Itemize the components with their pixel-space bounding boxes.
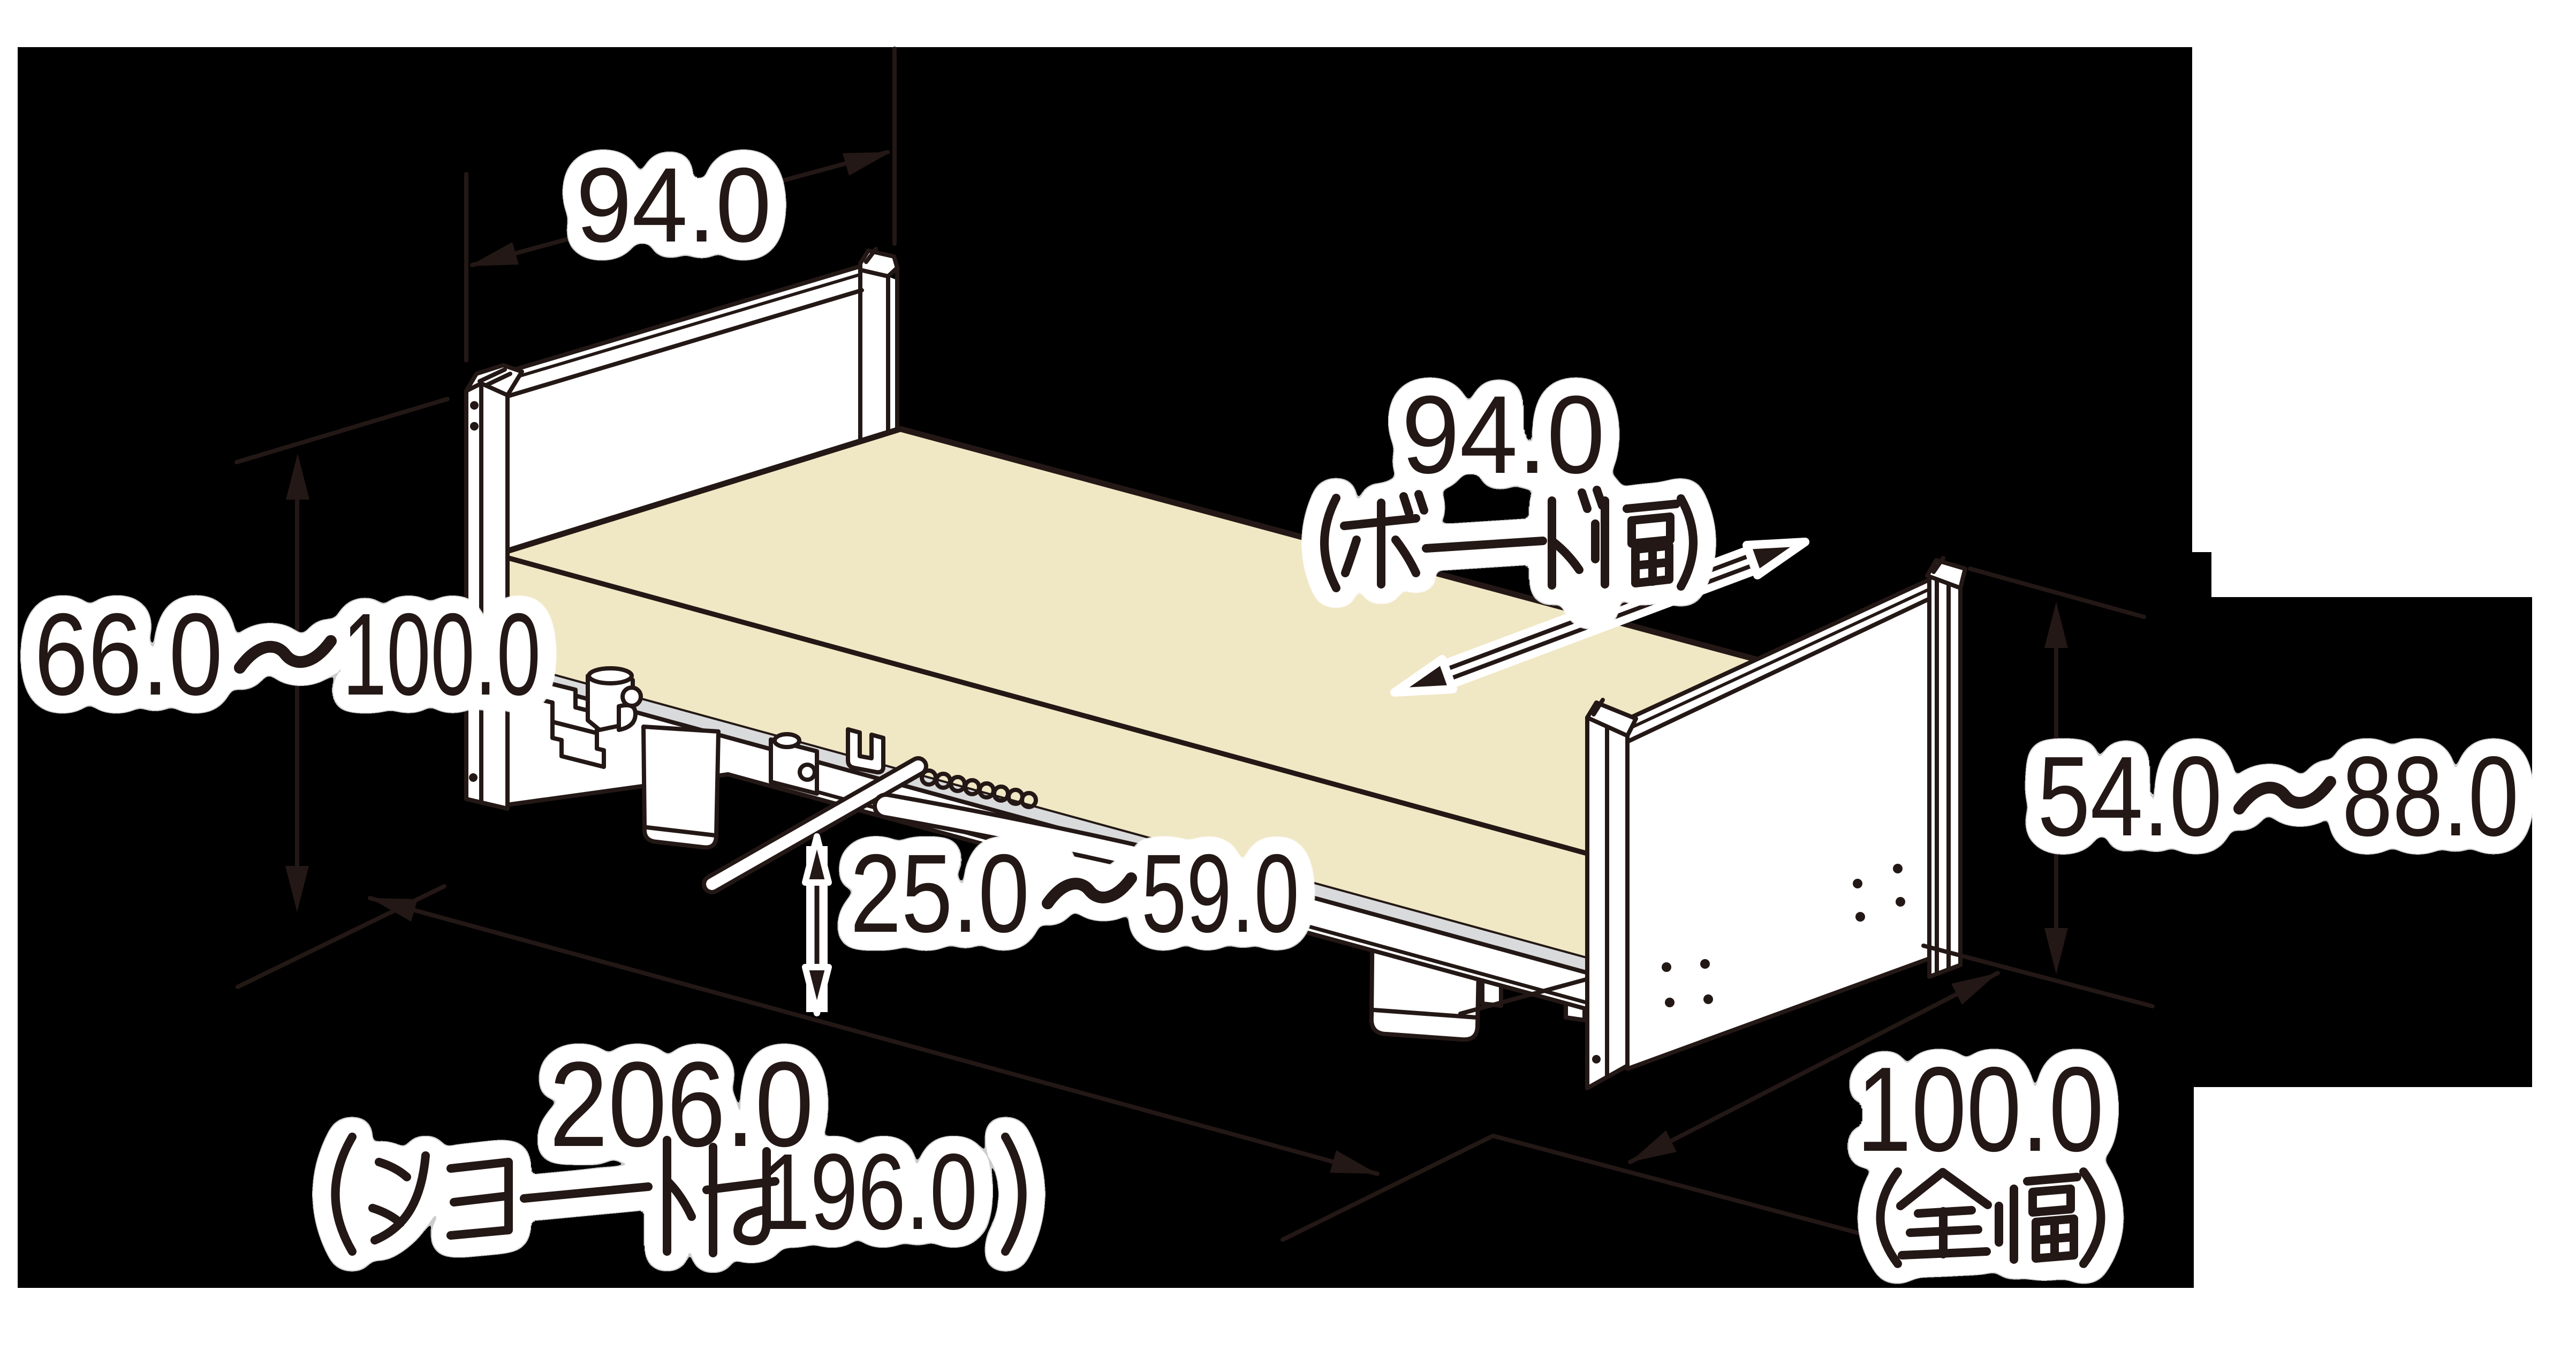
svg-text:100.0: 100.0 [1857,1042,2104,1176]
svg-text:94.0: 94.0 [576,146,771,264]
svg-text:25.0: 25.0 [850,832,1029,956]
svg-text:94.0: 94.0 [1401,373,1605,496]
svg-text:59.0: 59.0 [1141,832,1299,956]
svg-text:196.0: 196.0 [762,1131,978,1252]
svg-text:66.0: 66.0 [34,590,223,720]
svg-text:54.0: 54.0 [2037,733,2222,859]
svg-text:88.0: 88.0 [2342,733,2519,859]
svg-text:100.0: 100.0 [343,590,541,720]
